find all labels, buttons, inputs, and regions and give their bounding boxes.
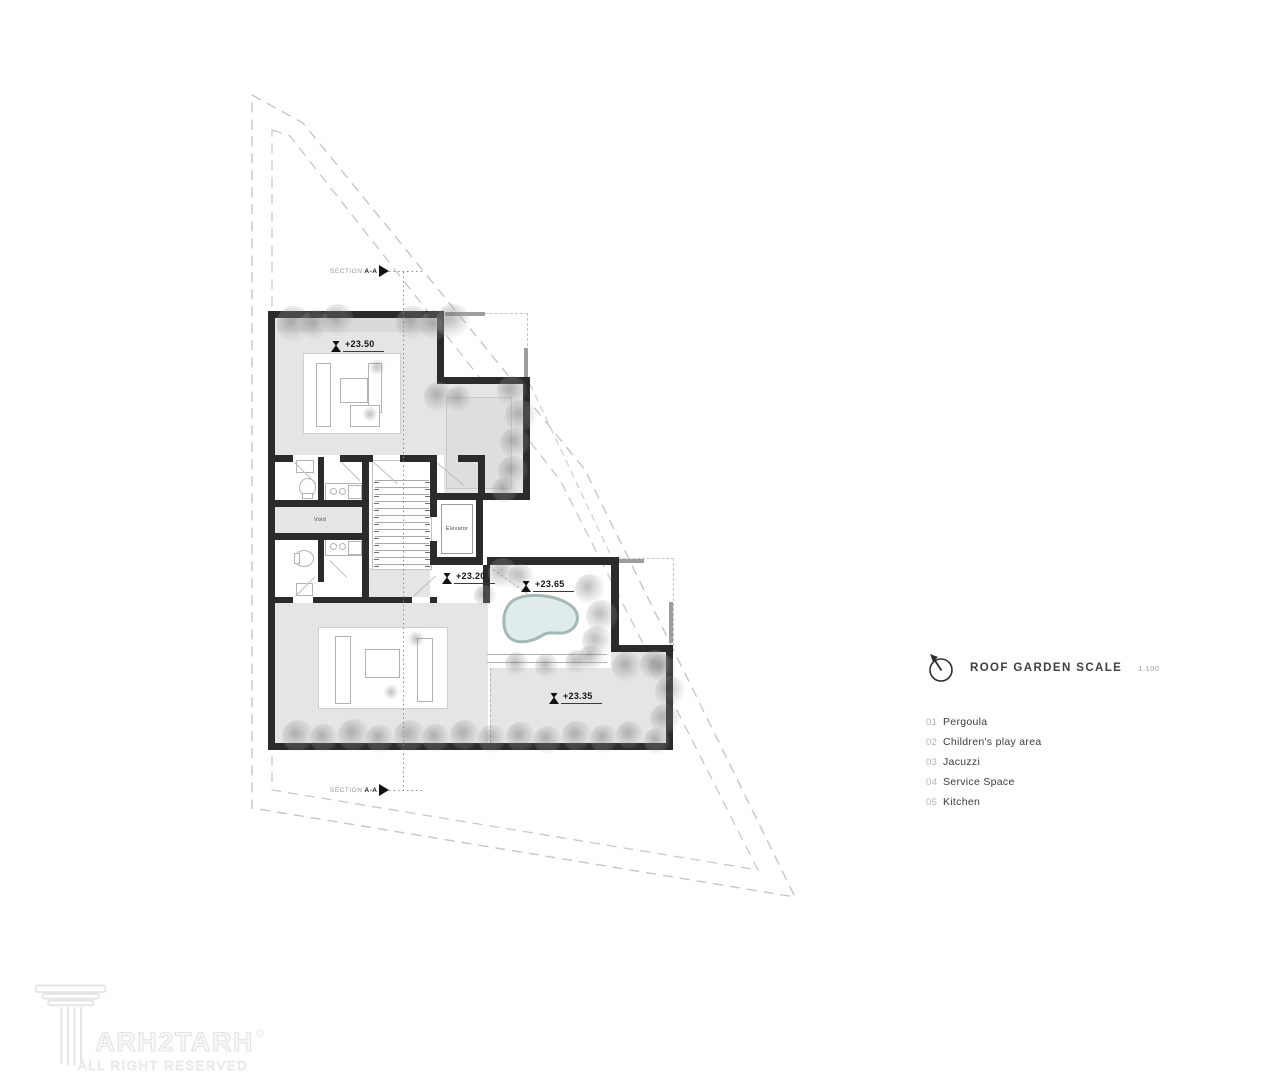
level-marker-icon [331,340,341,352]
floor-stair-corridor [369,568,430,597]
wall-segment [268,311,275,750]
legend-title: ROOF GARDEN SCALE [970,662,1122,674]
shrub [505,652,529,676]
shrub [655,676,685,706]
shrub [534,726,562,754]
legend-item-list: 01 Pergoula 02 Children's play area 03 J… [926,716,1160,816]
coffee-table [340,378,368,403]
legend-item: 04 Service Space [926,776,1160,796]
wall-segment [268,533,369,540]
legend-header: ROOF GARDEN SCALE 1.100 [926,652,1160,684]
wall-segment [458,455,485,462]
shrub [535,654,559,678]
elevator-label: Elevator [433,500,481,557]
shrub [422,724,450,752]
level-value: +23.20 [454,572,495,584]
legend-item: 05 Kitchen [926,796,1160,816]
legend-item-number: 04 [926,777,943,788]
shrub [616,721,644,749]
level-value: +23.65 [533,580,574,592]
jacuzzi-pool [498,592,584,650]
copyright-icon: © [256,1028,264,1040]
wall-segment [362,597,412,603]
pergola-seating-rug-upper [303,353,401,434]
stair-treads [375,480,429,569]
section-marker-label: SECTION [330,268,362,275]
legend-item-label: Jacuzzi [943,756,980,768]
shrub [506,722,536,752]
shrub [478,725,506,753]
shrub [644,728,670,754]
void-label: Void [275,507,365,533]
section-marker-bottom: SECTION A-A [330,784,425,796]
wall-segment [318,457,324,503]
sofa [316,363,331,427]
shrub [446,386,472,412]
legend-item: 02 Children's play area [926,736,1160,756]
shrub [474,585,496,607]
spot-level-upper-roof: +23.50 [331,340,384,352]
spot-level-play-area: +23.35 [549,692,602,704]
wall-segment [268,597,293,603]
shrub [310,724,338,752]
site-boundary-lines [0,0,1286,1080]
potted-plant [362,406,378,422]
section-arrow-icon [379,784,389,796]
legend-item-label: Children's play area [943,736,1041,748]
section-marker-top: SECTION A-A [330,265,425,277]
shrub [366,725,394,753]
stair-step-numbers-left [374,482,379,567]
staircase [372,460,432,570]
spot-level-jacuzzi-deck: +23.65 [521,580,574,592]
section-arrow-icon [379,265,389,277]
legend-item-number: 02 [926,737,943,748]
wall-segment [272,455,293,462]
shrub [612,652,642,682]
legend-item-label: Service Space [943,776,1015,788]
watermark: ARH2TARH © ALL RIGHT RESERVED [34,980,264,1073]
shrub [450,720,480,750]
legend-item-label: Kitchen [943,796,980,808]
shrub [590,725,618,753]
coffee-table [365,649,400,678]
pergola-seating-rug-lower [318,627,448,709]
shrub [562,721,592,751]
north-arrow-icon [926,652,956,684]
spot-level-stair-lobby: +23.20 [442,572,495,584]
level-value: +23.50 [343,340,384,352]
level-marker-icon [521,580,531,592]
level-marker-icon [442,572,452,584]
section-marker-label: A-A [364,268,377,275]
lower-wall-bar [669,602,673,643]
shrub [322,304,354,336]
shrub [500,428,530,458]
lower-floor-outline-bottom-right [618,558,674,646]
level-marker-icon [549,692,559,704]
sofa [417,638,433,702]
wall-segment [313,597,369,603]
shrub [338,719,370,751]
legend-scale: 1.100 [1138,664,1159,673]
section-marker-label: SECTION [330,787,362,794]
legend-item-label: Pergoula [943,716,987,728]
lower-wall-bar [524,348,528,378]
shrub [505,400,537,432]
wall-segment [318,537,324,582]
level-value: +23.35 [561,692,602,704]
watermark-brand-text: ARH2TARH [95,1029,254,1056]
legend: ROOF GARDEN SCALE 1.100 01 Pergoula 02 C… [926,652,1160,816]
lower-wall-bar [618,559,644,563]
section-leader-dotted-line [389,790,425,791]
shrub [565,650,589,674]
section-marker-label: A-A [364,787,377,794]
watermark-brand-row: ARH2TARH © [34,980,264,1070]
sofa [335,636,351,704]
roof-garden-plan-sheet: Elevator Void [0,0,1286,1080]
shrub [436,304,470,338]
wall-segment [430,597,437,603]
potted-plant [407,631,425,647]
watermark-rights-text: ALL RIGHT RESERVED [78,1058,264,1073]
legend-item: 01 Pergoula [926,716,1160,736]
legend-item-number: 03 [926,757,943,768]
legend-item: 03 Jacuzzi [926,756,1160,776]
potted-plant [368,359,386,375]
potted-plant [383,684,399,700]
wall-segment [268,500,369,507]
legend-item-number: 05 [926,797,943,808]
lower-floor-edge-line [530,384,611,556]
section-leader-dotted-line [389,271,425,272]
legend-item-number: 01 [926,717,943,728]
shrub [492,477,518,503]
wall-segment [611,645,673,652]
section-cut-line [403,272,404,790]
